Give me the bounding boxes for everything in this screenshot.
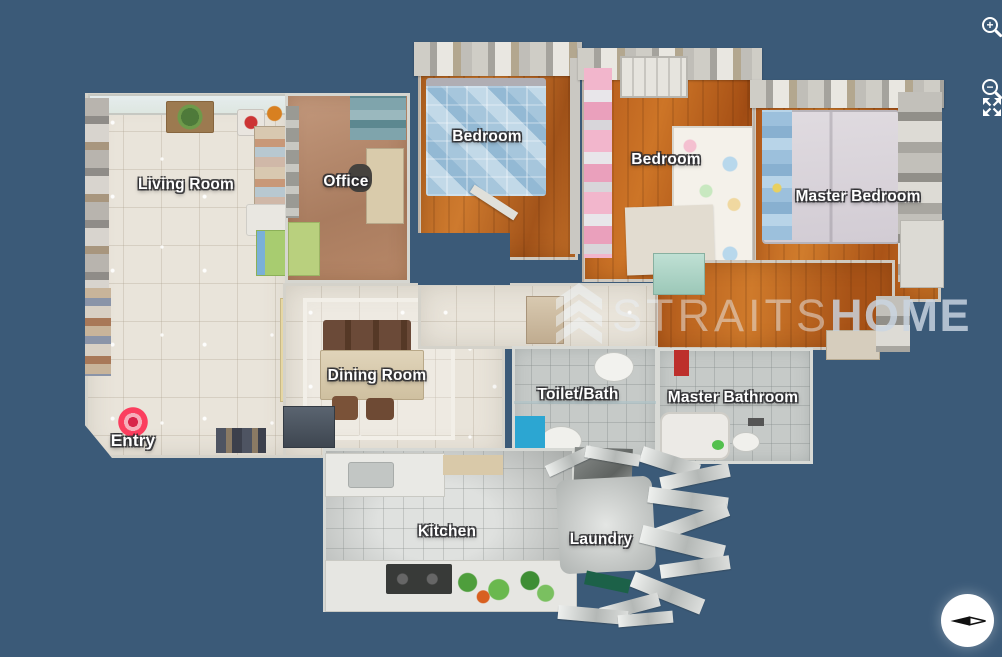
hall-dresser bbox=[526, 296, 564, 344]
planter-box bbox=[166, 101, 214, 133]
plus-glyph: + bbox=[982, 17, 998, 33]
crib bbox=[620, 56, 688, 98]
orange-basket bbox=[266, 105, 283, 122]
bathroom-sink bbox=[732, 432, 760, 452]
shoe-rack bbox=[85, 288, 111, 376]
bedroom1-right-wall bbox=[570, 58, 580, 254]
sideboard-cabinet bbox=[283, 406, 335, 448]
kitchen-sink bbox=[348, 462, 394, 488]
compass-needle-icon bbox=[948, 601, 988, 641]
zoom-in-button[interactable]: + bbox=[980, 15, 1002, 39]
fullscreen-button[interactable] bbox=[980, 95, 1002, 119]
floorplan-canvas[interactable]: STRAITSHOME Living Room Office Bedroom B… bbox=[0, 0, 1002, 657]
corridor-green-cabinet bbox=[653, 253, 705, 295]
master-right-cabinet bbox=[900, 220, 944, 288]
office-green-mat bbox=[288, 222, 320, 276]
stove bbox=[386, 564, 452, 594]
minus-glyph: − bbox=[982, 79, 998, 95]
corridor-shoe-cabinet bbox=[826, 330, 880, 360]
office-chair bbox=[348, 164, 372, 192]
dining-chair bbox=[332, 396, 358, 420]
toilet-bowl bbox=[594, 352, 634, 382]
doormat-shoes bbox=[216, 428, 266, 453]
kitchen-beige-strip bbox=[443, 455, 503, 475]
bedroom2-pink-wardrobe bbox=[584, 68, 612, 258]
dark-bath-item bbox=[748, 418, 764, 426]
bedroom1-wall-debris bbox=[414, 42, 582, 76]
laundry-floor bbox=[556, 476, 657, 575]
entry-marker[interactable] bbox=[117, 406, 149, 438]
kitchen-plants bbox=[452, 568, 556, 604]
corridor-wall-chunk bbox=[876, 296, 910, 352]
laundry-shard bbox=[659, 555, 730, 579]
compass-button[interactable] bbox=[941, 594, 994, 647]
viewer-stage: STRAITSHOME Living Room Office Bedroom B… bbox=[0, 0, 1002, 657]
red-laundry-basket bbox=[674, 350, 689, 376]
dining-table bbox=[320, 350, 424, 400]
dining-bench bbox=[323, 320, 411, 354]
bedroom1-bed bbox=[426, 78, 546, 196]
office-teal-unit bbox=[350, 96, 406, 140]
dining-chair bbox=[366, 398, 394, 420]
expand-arrows-icon bbox=[980, 95, 1002, 119]
office-shelf bbox=[286, 106, 299, 218]
master-bed-headboard bbox=[762, 110, 792, 240]
green-bath-item bbox=[712, 440, 724, 450]
laundry-dark-green-item bbox=[584, 570, 631, 593]
bedroom1-cutout bbox=[418, 233, 510, 285]
office-desk bbox=[366, 148, 404, 224]
bathtub bbox=[660, 412, 730, 460]
toilet-divider bbox=[514, 401, 656, 404]
